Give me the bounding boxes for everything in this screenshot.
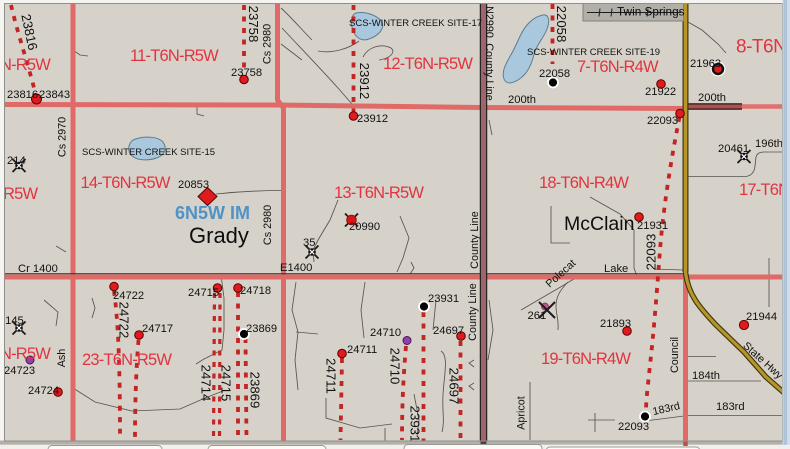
svg-text:.145: .145	[2, 315, 24, 327]
svg-text:24722: 24722	[117, 302, 132, 339]
svg-text:SCS-WINTER CREEK SITE-15: SCS-WINTER CREEK SITE-15	[82, 147, 215, 158]
svg-text:20461: 20461	[718, 143, 749, 155]
svg-text:24724: 24724	[28, 385, 59, 397]
svg-text:22093: 22093	[644, 234, 659, 271]
svg-text:21944: 21944	[746, 311, 777, 323]
svg-text:24710: 24710	[370, 327, 401, 339]
svg-text:County Line: County Line	[469, 211, 481, 269]
svg-text:24718: 24718	[240, 285, 271, 297]
svg-text:22093: 22093	[618, 421, 649, 433]
svg-text:22058: 22058	[554, 6, 569, 43]
svg-text:24697: 24697	[447, 368, 462, 405]
svg-text:196th: 196th	[755, 138, 783, 150]
svg-text:24723: 24723	[4, 365, 35, 377]
svg-text:21931: 21931	[637, 220, 668, 232]
svg-text:23869: 23869	[246, 323, 277, 335]
svg-text:Grady: Grady	[189, 223, 249, 248]
svg-text:20853: 20853	[178, 179, 209, 191]
svg-text:Council: Council	[669, 337, 681, 373]
svg-text:184th: 184th	[692, 370, 720, 382]
svg-text:21963: 21963	[690, 58, 721, 70]
svg-text:23843: 23843	[39, 89, 70, 101]
svg-text:24697: 24697	[433, 325, 464, 337]
svg-text:18-T6N-R4W: 18-T6N-R4W	[539, 174, 629, 192]
svg-text:County Line: County Line	[483, 43, 495, 101]
svg-text:35: 35	[303, 237, 315, 249]
svg-text:Twin Springs: Twin Springs	[617, 5, 685, 19]
svg-text:8-T6N-R: 8-T6N-R	[736, 37, 790, 58]
svg-text:N-R5W: N-R5W	[0, 345, 51, 363]
svg-text:24715: 24715	[219, 365, 234, 402]
svg-text:6N5W IM: 6N5W IM	[175, 203, 250, 223]
svg-text:21893: 21893	[600, 318, 631, 330]
svg-text:24711: 24711	[324, 358, 339, 394]
svg-text:7-T6N-R4W: 7-T6N-R4W	[577, 58, 659, 76]
svg-text:12-T6N-R5W: 12-T6N-R5W	[383, 55, 473, 73]
svg-text:19-T6N-R4W: 19-T6N-R4W	[541, 350, 631, 368]
svg-text:McClain: McClain	[564, 213, 634, 235]
svg-text:Lake: Lake	[604, 263, 628, 275]
svg-text:22058: 22058	[539, 68, 570, 80]
svg-text:23931: 23931	[428, 293, 459, 305]
svg-text:Cs 2980: Cs 2980	[262, 24, 274, 64]
svg-text:200th: 200th	[508, 94, 536, 106]
svg-text:24710: 24710	[388, 348, 403, 385]
svg-text:Cs 2980: Cs 2980	[262, 205, 274, 245]
svg-text:23758: 23758	[231, 67, 262, 79]
svg-text:20990: 20990	[349, 221, 380, 233]
svg-text:23816: 23816	[7, 89, 38, 101]
svg-text:14-T6N-R5W: 14-T6N-R5W	[81, 174, 171, 192]
svg-text:23912: 23912	[357, 113, 388, 125]
svg-text:24717: 24717	[142, 323, 173, 335]
svg-text:County Line: County Line	[467, 283, 479, 341]
svg-text:23-T6N-R5W: 23-T6N-R5W	[82, 351, 172, 369]
svg-text:24711: 24711	[347, 344, 377, 356]
svg-text:Ash: Ash	[56, 349, 68, 368]
svg-text:Cs 2970: Cs 2970	[57, 117, 69, 157]
svg-text:11-T6N-R5W: 11-T6N-R5W	[130, 47, 219, 65]
svg-text:Cr 1400: Cr 1400	[18, 263, 58, 275]
svg-text:N2990: N2990	[483, 6, 495, 38]
svg-text:21922: 21922	[645, 86, 676, 98]
svg-text:261: 261	[528, 310, 547, 322]
svg-text:214: 214	[7, 155, 26, 167]
svg-text:Apricot: Apricot	[516, 396, 528, 430]
svg-text:24722: 24722	[113, 290, 144, 302]
svg-text:24715: 24715	[188, 287, 219, 299]
svg-text:23758: 23758	[246, 6, 261, 43]
svg-text:R5W: R5W	[3, 185, 38, 203]
svg-text:23869: 23869	[248, 372, 263, 409]
svg-text:24714: 24714	[199, 365, 214, 402]
svg-text:13-T6N-R5W: 13-T6N-R5W	[334, 184, 424, 202]
svg-text:200th: 200th	[698, 92, 726, 104]
svg-text:SCS-WINTER CREEK SITE-19: SCS-WINTER CREEK SITE-19	[527, 47, 660, 58]
svg-text:183rd: 183rd	[716, 401, 745, 413]
svg-text:22093: 22093	[647, 115, 678, 127]
svg-text:23931: 23931	[408, 406, 423, 443]
svg-text:N-R5W: N-R5W	[0, 56, 51, 74]
svg-text:23912: 23912	[357, 63, 372, 100]
svg-text:E1400: E1400	[280, 262, 312, 274]
svg-text:SCS-WINTER CREEK SITE-17: SCS-WINTER CREEK SITE-17	[349, 18, 482, 29]
